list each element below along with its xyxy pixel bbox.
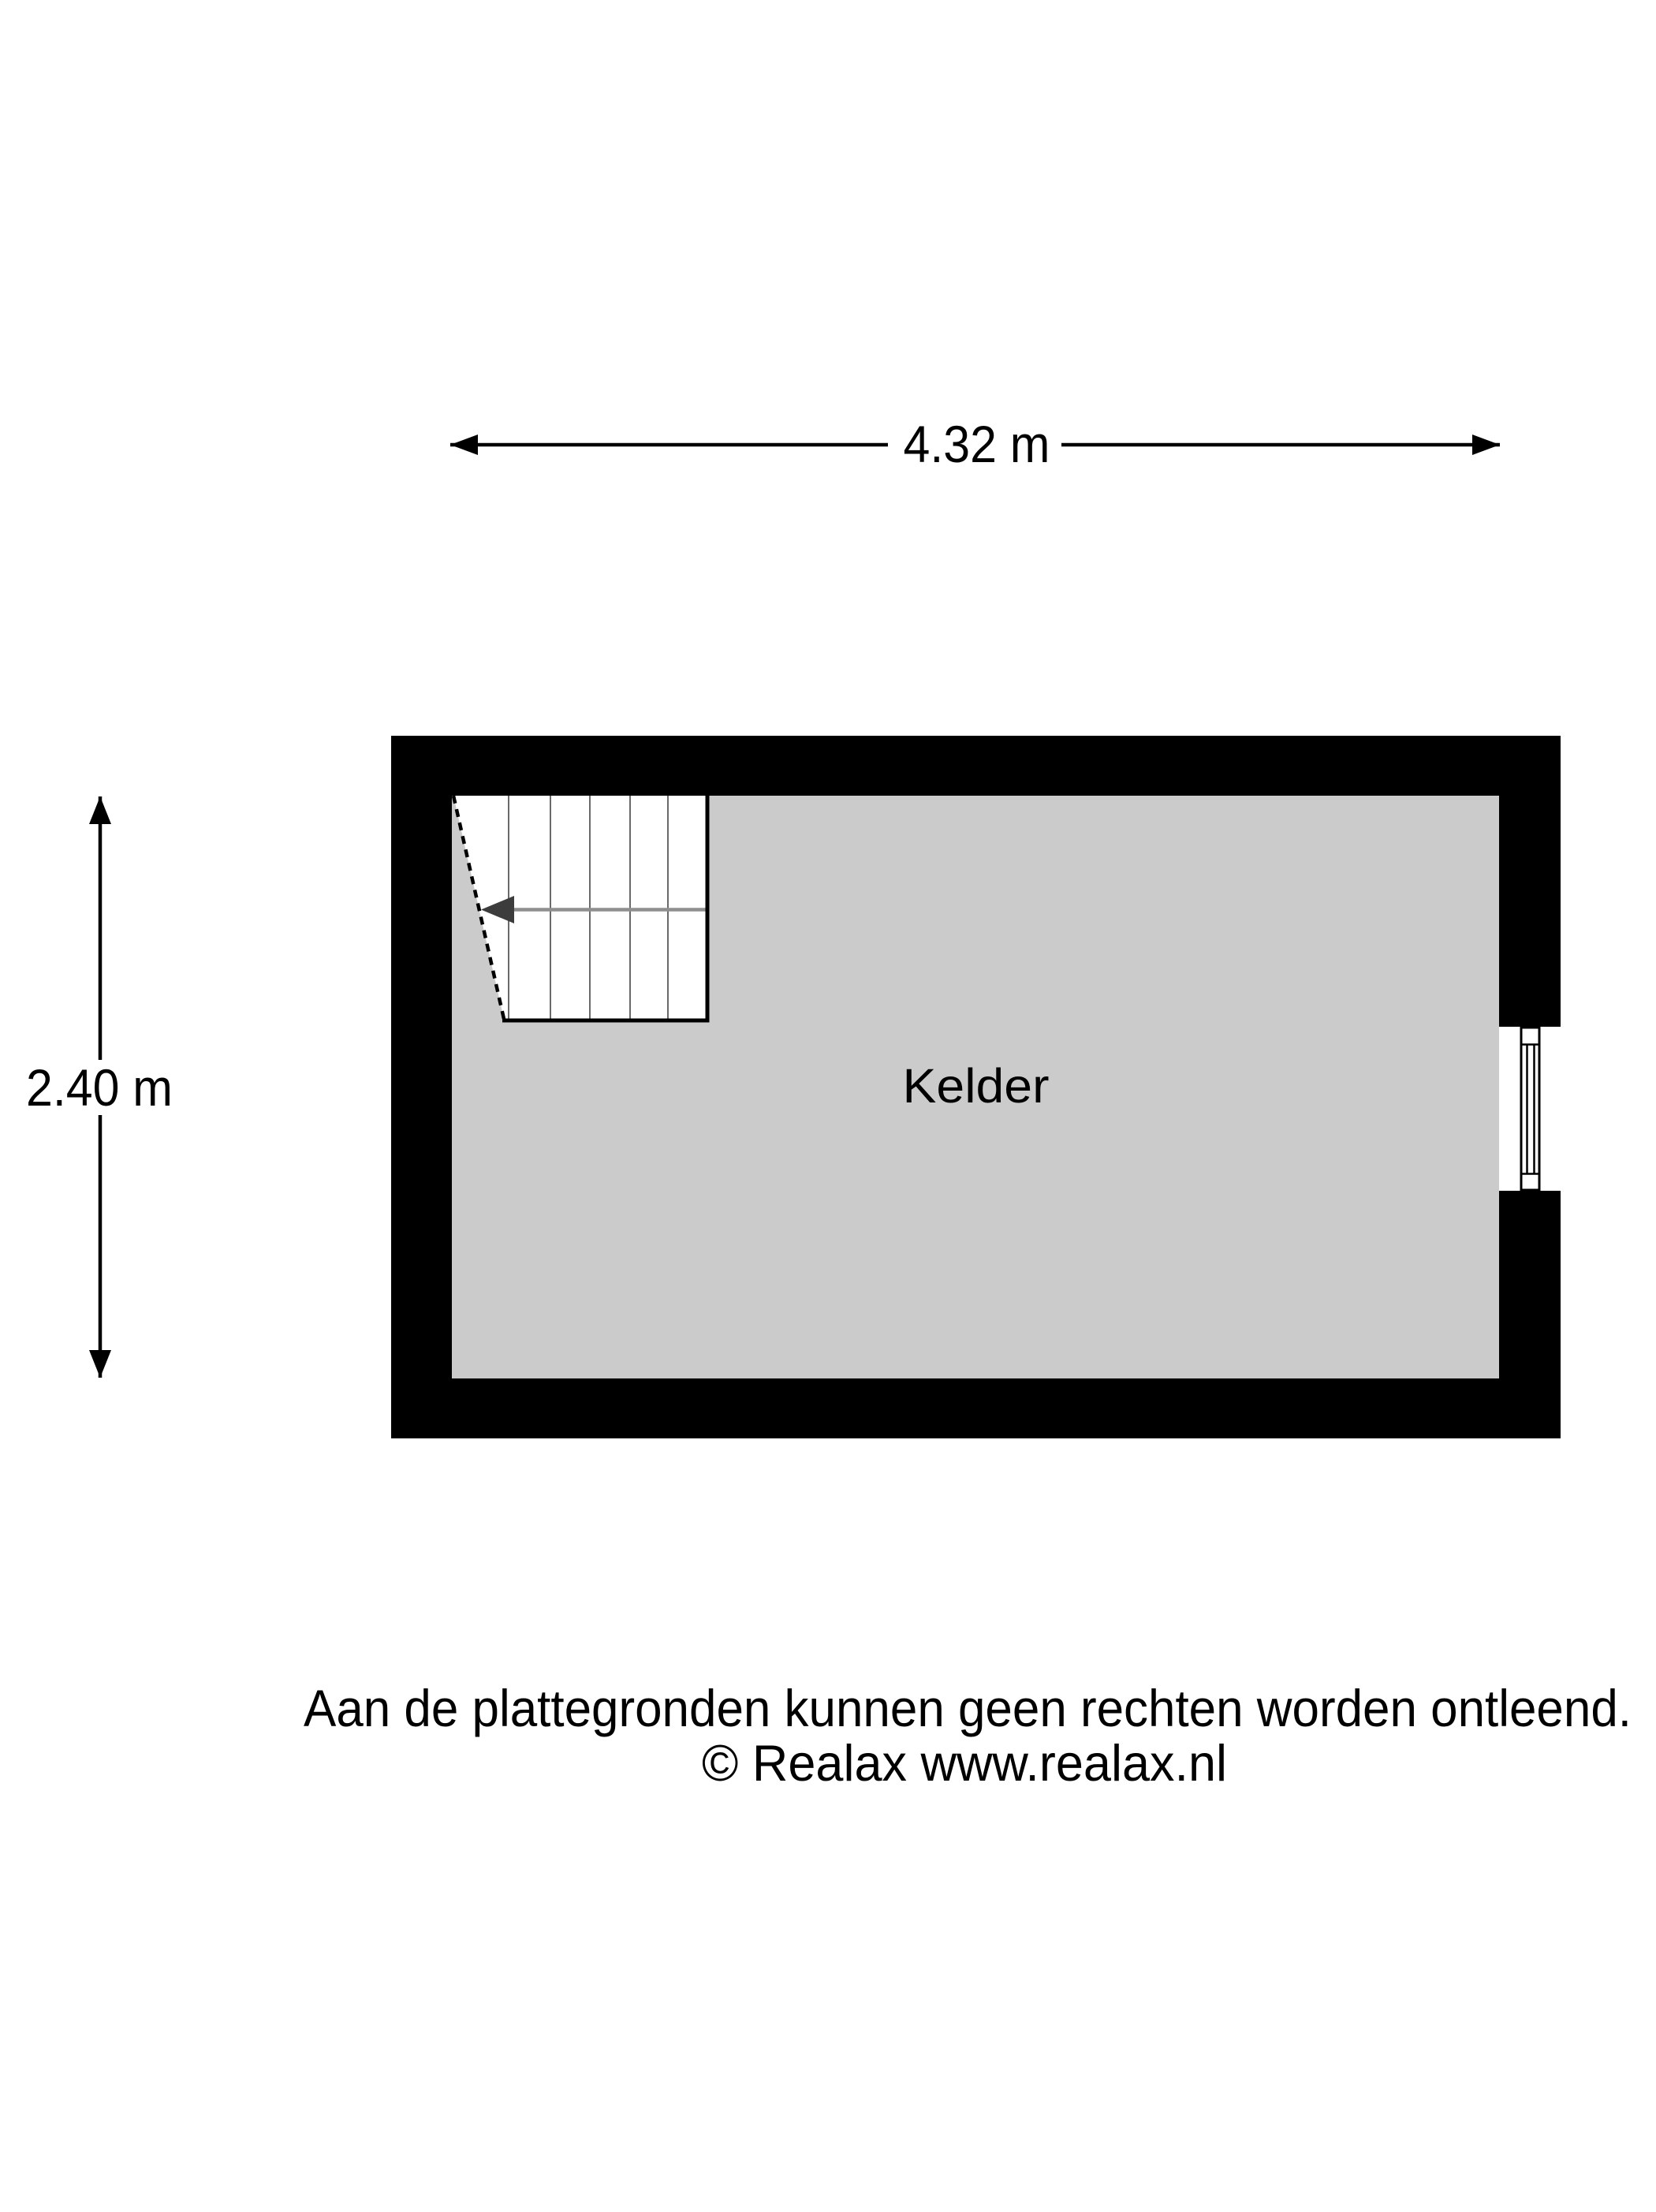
svg-text:4.32 m: 4.32 m (904, 415, 1050, 473)
svg-text:2.40 m: 2.40 m (26, 1058, 173, 1117)
svg-text:Kelder: Kelder (903, 1059, 1050, 1113)
svg-text:Aan de plattegronden kunnen ge: Aan de plattegronden kunnen geen rechten… (304, 1680, 1632, 1737)
svg-text:© Realax www.realax.nl: © Realax www.realax.nl (702, 1734, 1227, 1792)
